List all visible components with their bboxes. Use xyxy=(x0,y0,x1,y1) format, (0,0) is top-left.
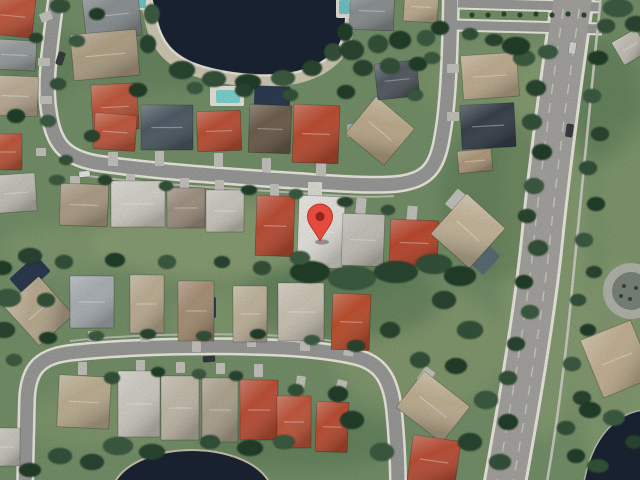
pin-shadow xyxy=(315,239,329,244)
map-viewport[interactable] xyxy=(0,0,640,480)
pin-dot xyxy=(315,212,324,221)
satellite-map[interactable] xyxy=(0,0,640,480)
